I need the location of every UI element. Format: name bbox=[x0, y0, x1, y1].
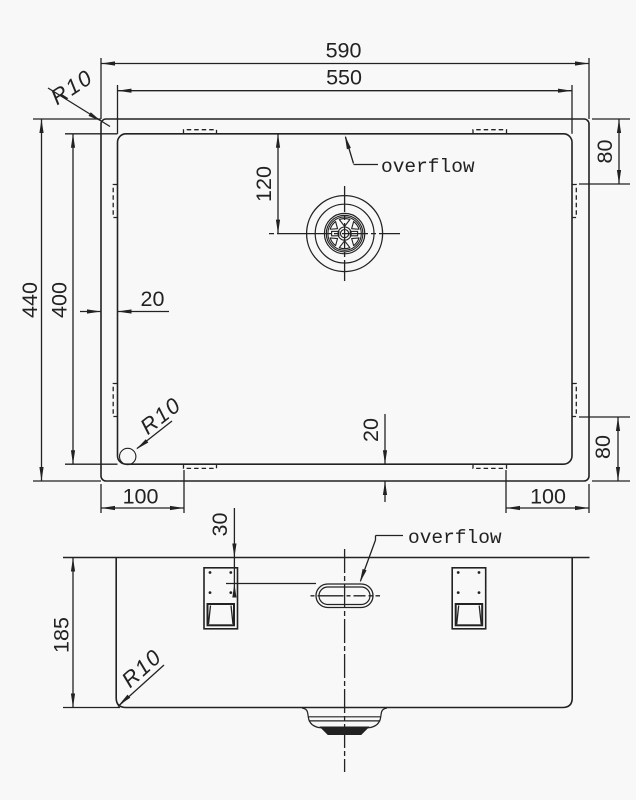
svg-text:550: 550 bbox=[326, 66, 362, 90]
svg-text:80: 80 bbox=[591, 435, 615, 459]
svg-text:80: 80 bbox=[593, 140, 617, 164]
svg-text:overflow: overflow bbox=[381, 156, 475, 178]
svg-text:185: 185 bbox=[50, 617, 74, 653]
svg-text:120: 120 bbox=[252, 166, 276, 202]
svg-text:overflow: overflow bbox=[408, 527, 502, 549]
svg-text:440: 440 bbox=[18, 282, 42, 318]
svg-text:100: 100 bbox=[530, 485, 566, 509]
svg-text:590: 590 bbox=[326, 39, 362, 63]
svg-text:20: 20 bbox=[359, 418, 383, 442]
svg-text:R10: R10 bbox=[135, 392, 186, 439]
svg-text:100: 100 bbox=[123, 485, 159, 509]
svg-text:400: 400 bbox=[48, 282, 72, 318]
svg-text:30: 30 bbox=[208, 513, 232, 537]
svg-text:20: 20 bbox=[141, 287, 165, 311]
